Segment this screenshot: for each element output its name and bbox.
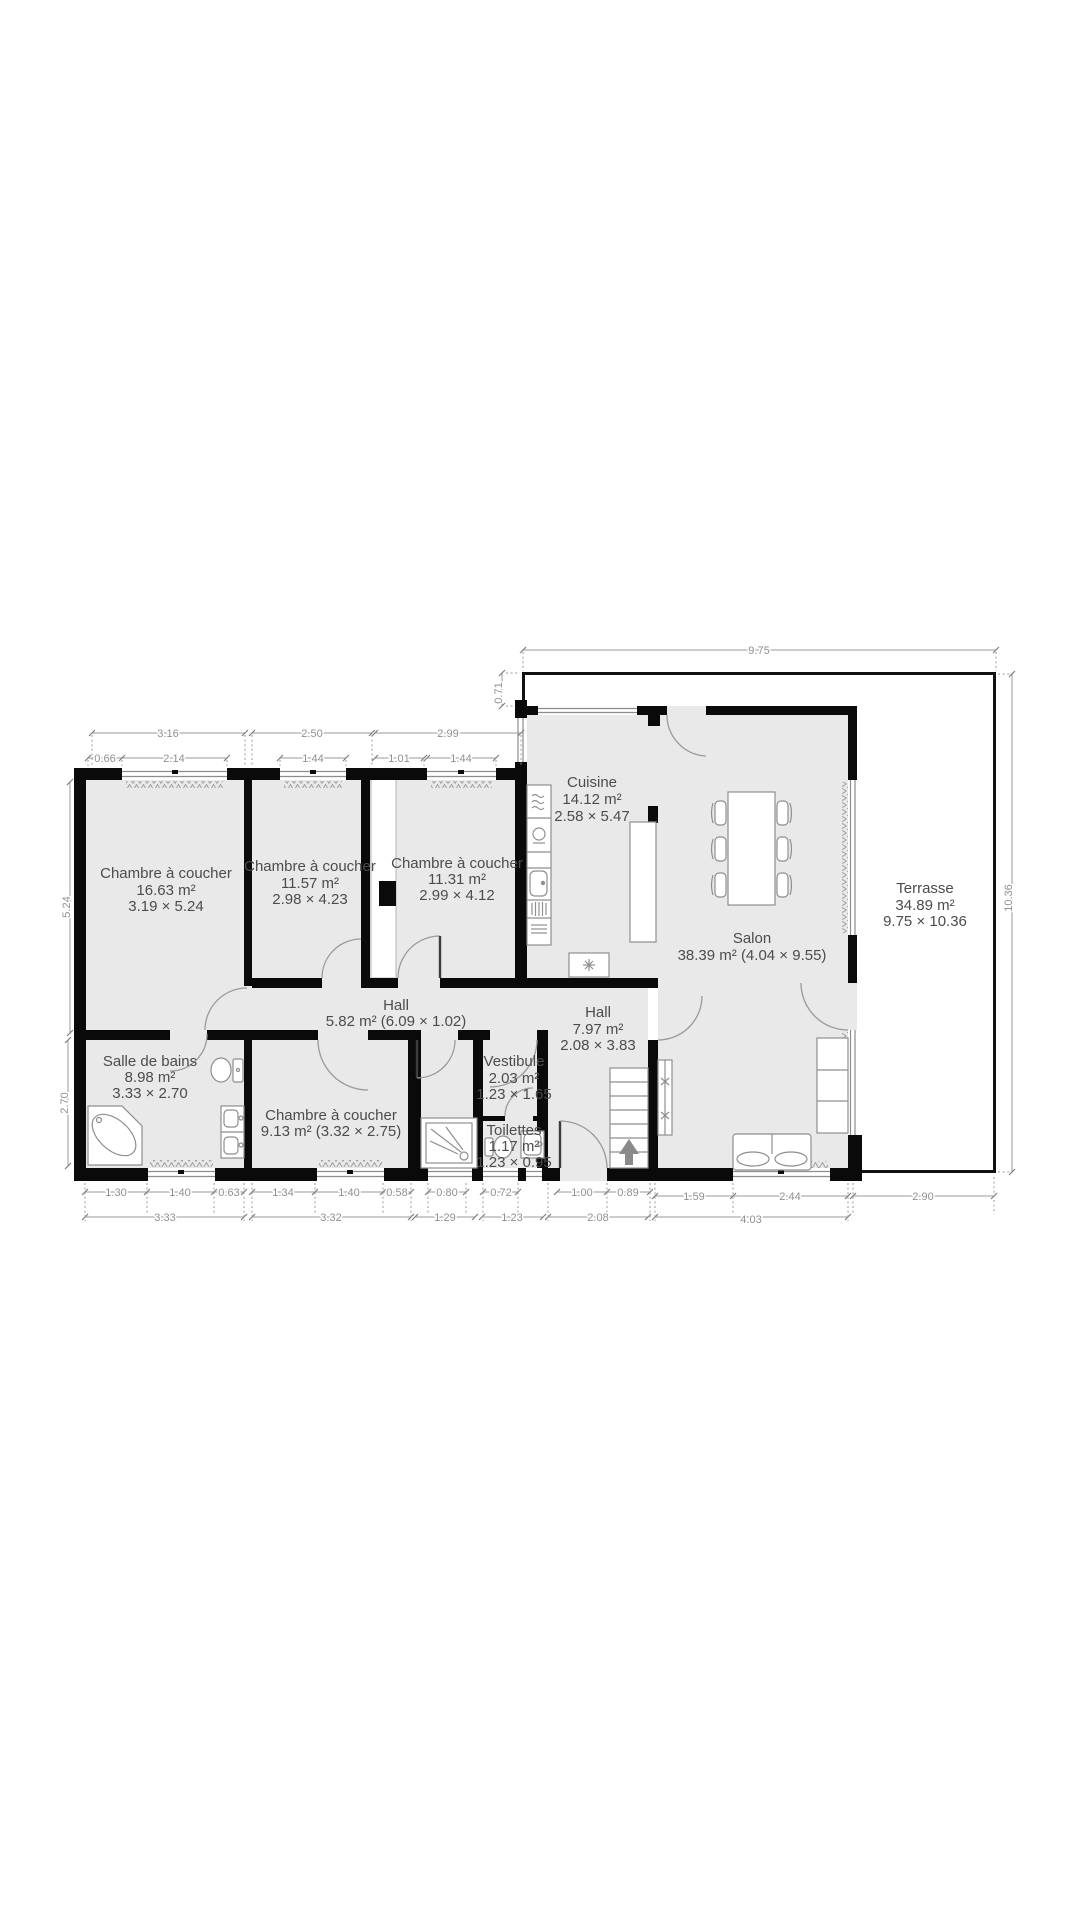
- room-corridor-east[interactable]: [515, 988, 548, 1030]
- room-size-bedroom1: 3.19 × 5.24: [128, 898, 203, 915]
- dim-label: 9.75: [748, 645, 769, 657]
- room-label-toilettes: Toilettes: [486, 1122, 541, 1139]
- room-size-toilettes: 1.23 × 0.95: [476, 1154, 551, 1171]
- room-area-bedroom2: 11.57 m²: [281, 875, 339, 892]
- room-size-cuisine: 2.58 × 5.47: [554, 808, 629, 825]
- room-area-vestibule: 2.03 m²: [489, 1070, 540, 1087]
- room-area-bedroom4: 9.13 m² (3.32 × 2.75): [261, 1123, 402, 1140]
- chair: [715, 801, 726, 825]
- room-label-bedroom4: Chambre à coucher: [265, 1107, 397, 1124]
- dim-label: 0.63: [218, 1187, 239, 1199]
- window-bathroom: [148, 1160, 215, 1181]
- room-label-terrasse: Terrasse: [896, 880, 954, 897]
- room-area-hall: 5.82 m² (6.09 × 1.02): [326, 1013, 467, 1030]
- dim-label: 1.34: [272, 1187, 293, 1199]
- room-area-hall-entry: 7.97 m²: [573, 1021, 624, 1038]
- terrace-door-threshold-right: [848, 983, 857, 1030]
- dim-label: 1.44: [302, 753, 323, 765]
- kitchen-counter: [527, 785, 551, 945]
- shelf-unit: [817, 1038, 848, 1133]
- staircase: [610, 1068, 648, 1168]
- dim-label: 3.33: [154, 1212, 175, 1224]
- window-kitchen-top: [538, 706, 637, 715]
- dim-label: 10.36: [1003, 884, 1015, 912]
- room-area-bedroom3: 11.31 m²: [428, 871, 486, 888]
- vanity-double-sink: [221, 1106, 244, 1158]
- window-bedroom2: [280, 768, 346, 788]
- dim-label: 1.40: [338, 1187, 359, 1199]
- room-label-vestibule: Vestibule: [484, 1053, 545, 1070]
- room-area-salon: 38.39 m² (4.04 × 9.55): [678, 947, 827, 964]
- dim-label: 0.58: [386, 1187, 407, 1199]
- dim-label: 0.66: [94, 753, 115, 765]
- kitchen-island: [630, 822, 656, 942]
- window-bedroom3: [427, 768, 496, 788]
- dim-label: 1.01: [388, 753, 409, 765]
- chair: [777, 873, 788, 897]
- wardrobe: [371, 779, 396, 978]
- toilet-bathroom: [211, 1058, 243, 1082]
- room-area-terrasse: 34.89 m²: [895, 897, 954, 914]
- room-size-hall-entry: 2.08 × 3.83: [560, 1037, 635, 1054]
- dim-label: 1.59: [683, 1191, 704, 1203]
- room-size-bedroom3: 2.99 × 4.12: [419, 887, 494, 904]
- room-size-vestibule: 1.23 × 1.65: [476, 1086, 551, 1103]
- dim-label: 0.71: [493, 682, 505, 703]
- dim-label: 0.89: [617, 1187, 638, 1199]
- room-area-bathroom: 8.98 m²: [125, 1069, 176, 1086]
- dim-label: 0.72: [490, 1187, 511, 1199]
- room-label-bathroom: Salle de bains: [103, 1053, 197, 1070]
- dim-label: 2.99: [437, 728, 458, 740]
- room-label-bedroom2: Chambre à coucher: [244, 858, 376, 875]
- room-size-bathroom: 3.33 × 2.70: [112, 1085, 187, 1102]
- dim-label: 0.80: [436, 1187, 457, 1199]
- terrace-door-threshold-top: [667, 706, 706, 715]
- room-label-cuisine: Cuisine: [567, 774, 617, 791]
- room-label-bedroom3: Chambre à coucher: [391, 855, 523, 872]
- room-area-toilettes: 1.17 m²: [489, 1138, 540, 1155]
- chair: [715, 837, 726, 861]
- wardrobe-flue-block: [379, 881, 396, 906]
- dim-label: 2.08: [587, 1212, 608, 1224]
- dim-label: 2.70: [59, 1092, 71, 1113]
- room-size-terrasse: 9.75 × 10.36: [883, 913, 967, 930]
- dim-label: 1.40: [169, 1187, 190, 1199]
- dim-label: 1.44: [450, 753, 471, 765]
- dim-label: 5.24: [61, 896, 73, 917]
- dim-label: 2.90: [912, 1191, 933, 1203]
- dim-label: 3.32: [320, 1212, 341, 1224]
- floor-plan-canvas: 9.75 0.71 3.16 0.66 2.14 2.50 1.44 2.99 …: [0, 0, 1080, 1920]
- dim-label: 1.23: [501, 1212, 522, 1224]
- window-bedroom4: [317, 1160, 384, 1181]
- dim-label: 1.29: [434, 1212, 455, 1224]
- sofa: [733, 1134, 811, 1170]
- dim-label: 2.50: [301, 728, 322, 740]
- room-area-bedroom1: 16.63 m²: [136, 882, 195, 899]
- room-area-cuisine: 14.12 m²: [562, 791, 621, 808]
- dim-label: 1.30: [105, 1187, 126, 1199]
- room-label-hall-entry: Hall: [585, 1004, 611, 1021]
- chair: [715, 873, 726, 897]
- sink-icon: [530, 871, 547, 896]
- room-size-bedroom2: 2.98 × 4.23: [272, 891, 347, 908]
- entry-threshold: [560, 1168, 607, 1181]
- dim-label: 2.14: [163, 753, 184, 765]
- window-bedroom1: [122, 768, 227, 788]
- room-label-hall: Hall: [383, 997, 409, 1014]
- shower: [421, 1118, 477, 1168]
- dim-label: 3.16: [157, 728, 178, 740]
- fridge: [569, 953, 609, 977]
- dining-table: [712, 792, 792, 905]
- dim-label: 2.44: [779, 1191, 800, 1203]
- chair: [777, 837, 788, 861]
- room-label-bedroom1: Chambre à coucher: [100, 865, 232, 882]
- window-salon-east-upper: [842, 780, 857, 935]
- dim-label: 1.00: [571, 1187, 592, 1199]
- dim-label: 4.03: [740, 1214, 761, 1226]
- floor-plan: 9.75 0.71 3.16 0.66 2.14 2.50 1.44 2.99 …: [0, 0, 1080, 1920]
- radiator: [658, 1060, 672, 1135]
- chair: [777, 801, 788, 825]
- window-shower: [428, 1168, 472, 1181]
- room-label-salon: Salon: [733, 930, 771, 947]
